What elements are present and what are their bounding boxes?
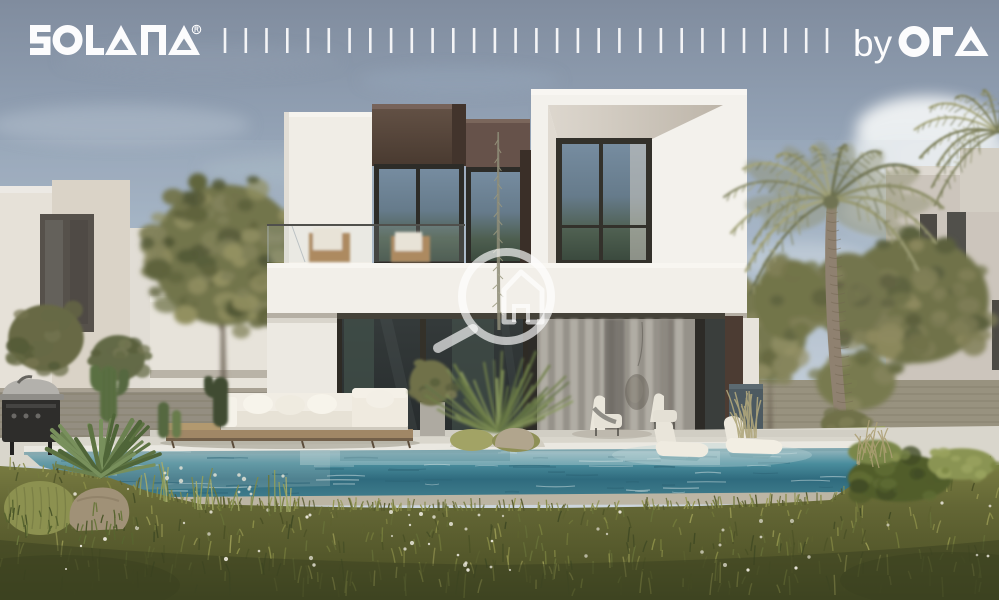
svg-text:by: by xyxy=(853,23,893,64)
